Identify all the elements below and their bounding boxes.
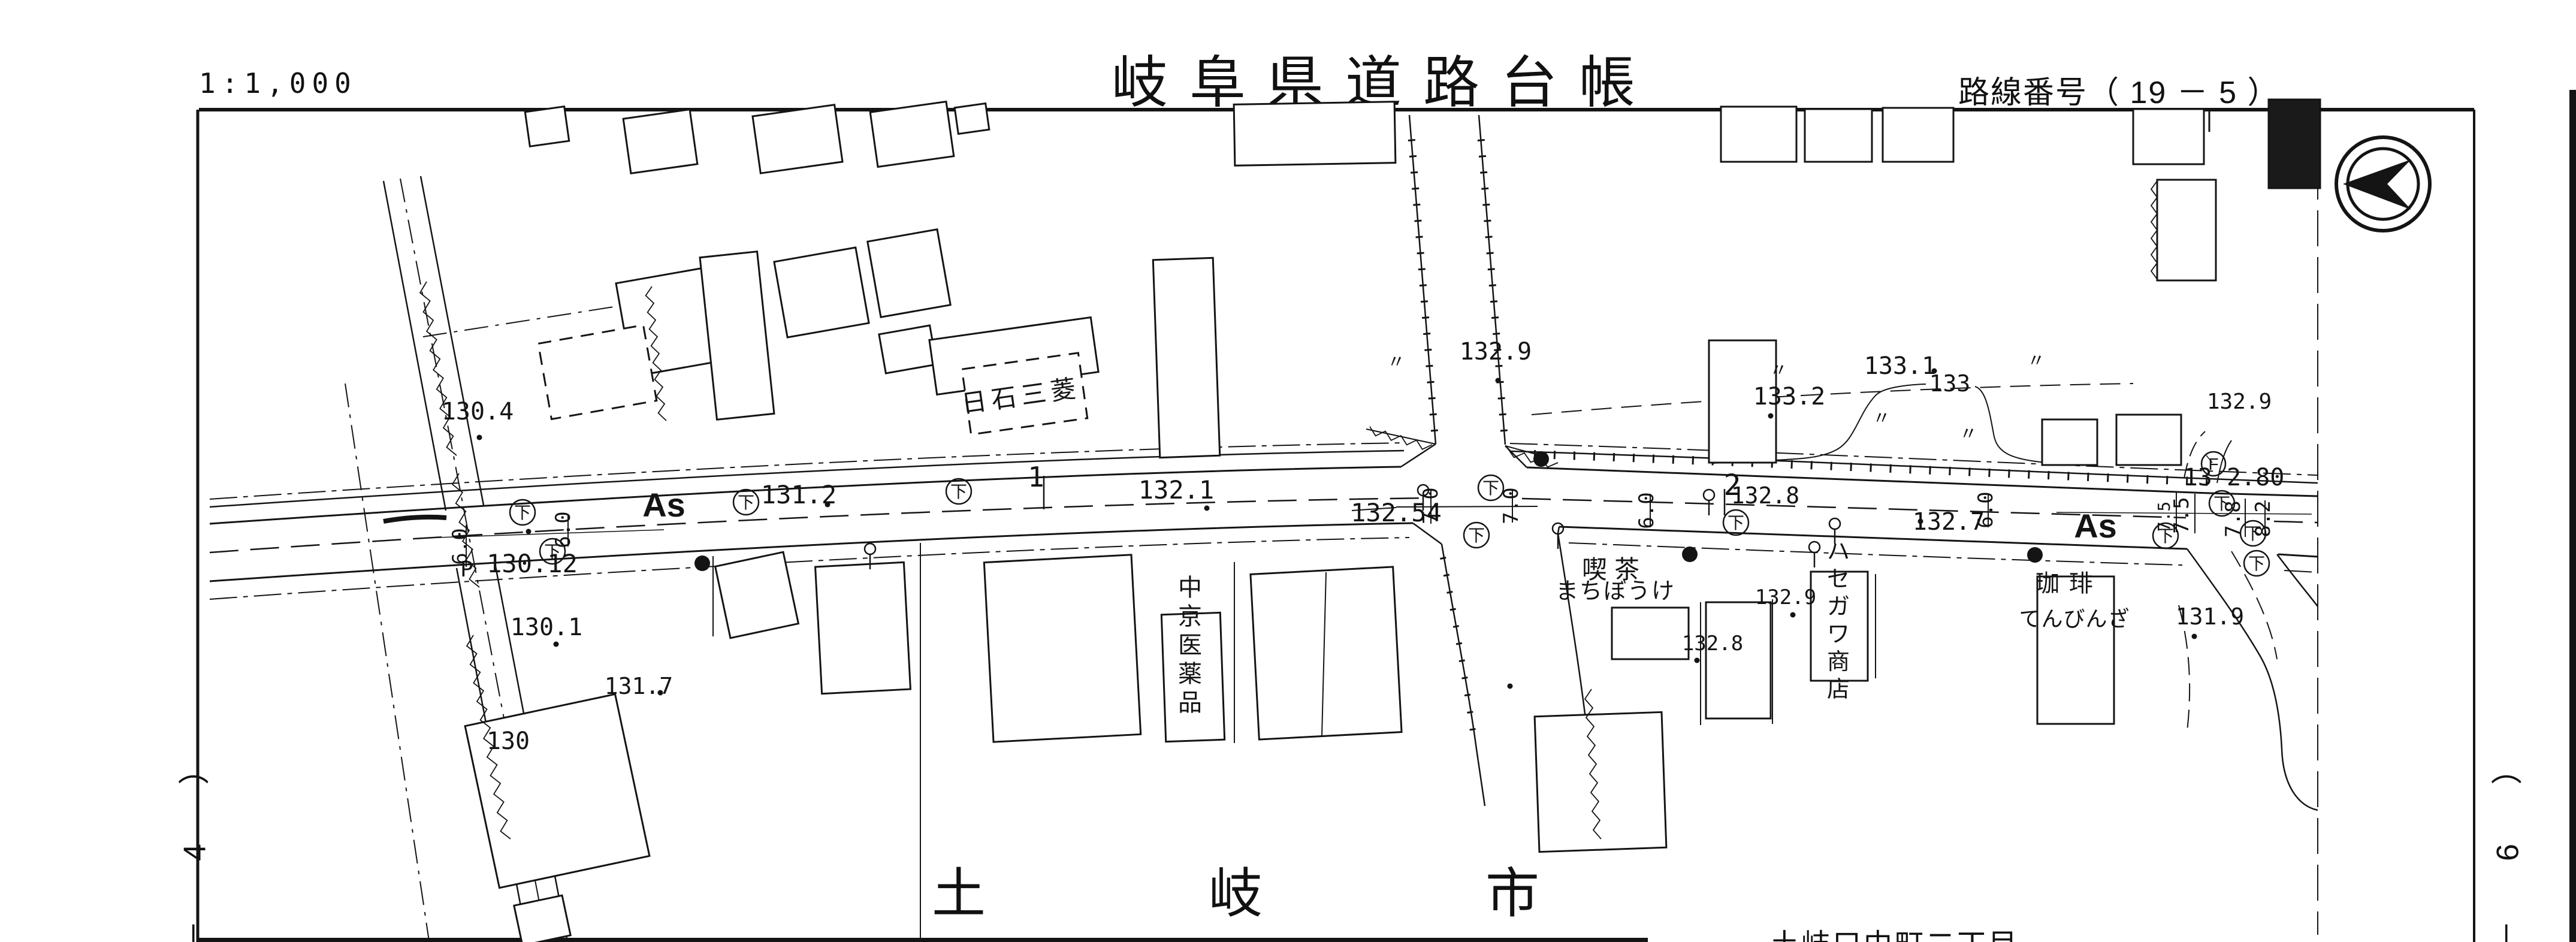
map-label: 130 bbox=[487, 727, 530, 755]
building-outline bbox=[2133, 109, 2204, 164]
sewer-manhole-icon: 下 bbox=[946, 479, 971, 504]
map-label: 〃 bbox=[1873, 409, 1891, 428]
building-outline bbox=[870, 102, 954, 167]
map-label: 6.0 bbox=[1974, 491, 1998, 528]
spot-elevation-dot bbox=[1695, 658, 1700, 663]
north-arrow-icon bbox=[2336, 137, 2430, 231]
building-outline bbox=[955, 104, 989, 134]
spot-elevation-dot bbox=[477, 435, 482, 440]
map-label: 130.4 bbox=[442, 398, 514, 425]
building-outline bbox=[868, 230, 950, 318]
building-outline bbox=[465, 694, 650, 887]
map-label: 132.8 bbox=[1731, 482, 1799, 509]
sewer-manhole-icon: 下 bbox=[2244, 551, 2269, 576]
building-outline bbox=[2042, 419, 2097, 465]
survey-point-icon bbox=[694, 555, 710, 571]
map-label: 〃 bbox=[1387, 352, 1405, 372]
map-label: 〃 bbox=[2027, 351, 2045, 371]
map-label: てんびんざ bbox=[2019, 606, 2130, 631]
survey-point-icon bbox=[2027, 547, 2043, 563]
spot-elevation-dot bbox=[2192, 634, 2197, 639]
svg-text:下: 下 bbox=[1728, 514, 1744, 532]
spot-elevation-dot bbox=[1204, 506, 1210, 511]
map-label: 8.2 bbox=[2251, 500, 2275, 537]
svg-text:下: 下 bbox=[2248, 554, 2265, 573]
building-outline bbox=[1883, 108, 1953, 162]
map-label: 132.9 bbox=[1755, 585, 1816, 609]
map-label: 〃 bbox=[1769, 361, 1787, 381]
map-label: 132.9 bbox=[2207, 390, 2272, 414]
map-label: 132.9 bbox=[1460, 338, 1532, 366]
building-outline bbox=[2157, 180, 2216, 280]
spot-elevation-dot bbox=[526, 529, 531, 535]
map-label: 6.0 bbox=[448, 528, 472, 564]
scan-edge-right bbox=[2569, 90, 2576, 942]
building-outline bbox=[1535, 712, 1666, 852]
map-label: 131.9 bbox=[2176, 603, 2244, 630]
map-label: As bbox=[642, 486, 685, 524]
svg-text:下: 下 bbox=[1482, 479, 1499, 497]
building-outline bbox=[700, 252, 774, 420]
map-label: 7.8 bbox=[2221, 500, 2245, 537]
map-label: 133.1 bbox=[1864, 352, 1936, 380]
map-label: まちぼうけ bbox=[1556, 579, 1675, 604]
map-label: 131.2 bbox=[761, 480, 836, 509]
map-label: 130.1 bbox=[511, 614, 582, 641]
map-label: 7.0 bbox=[1499, 487, 1523, 524]
building-outline bbox=[984, 555, 1140, 742]
survey-point-icon bbox=[1682, 547, 1698, 562]
map-label: 131.7 bbox=[605, 673, 673, 699]
building-outline bbox=[1234, 102, 1396, 166]
scan-edge-bottom bbox=[198, 938, 1648, 942]
cross-street-north bbox=[1409, 115, 1505, 445]
map-label: 13 2.80 bbox=[2184, 464, 2285, 491]
spot-elevation-dot bbox=[1768, 413, 1774, 419]
spot-elevation-dot bbox=[1790, 612, 1796, 618]
building-outline bbox=[879, 325, 937, 373]
sewer-manhole-icon: 下 bbox=[1723, 510, 1748, 535]
building-outline bbox=[1153, 258, 1219, 457]
map-label: 中京医薬品 bbox=[1178, 575, 1202, 716]
spot-elevation-dot bbox=[1508, 684, 1513, 689]
map-label: 133.2 bbox=[1753, 383, 1825, 410]
survey-point-icon bbox=[1533, 451, 1549, 467]
map-label: 〃 bbox=[1959, 424, 1977, 444]
map-label: 珈琲 bbox=[2036, 570, 2103, 597]
slope-hatch-line bbox=[1370, 427, 1432, 449]
map-label: 6.0 bbox=[551, 511, 575, 548]
parcel-boundaries bbox=[423, 117, 2318, 938]
sewer-manhole-icon: 下 bbox=[733, 490, 759, 515]
building-outline bbox=[753, 105, 842, 173]
spot-elevation-dot bbox=[1496, 378, 1501, 384]
building-outline bbox=[774, 247, 869, 337]
building-outline bbox=[1721, 107, 1796, 162]
map-label: 6.0 bbox=[1635, 492, 1659, 529]
building-outline bbox=[2116, 415, 2181, 465]
building-outline bbox=[1805, 109, 1872, 162]
svg-text:下: 下 bbox=[1468, 526, 1485, 545]
map-label: As bbox=[2074, 507, 2117, 545]
building-outline bbox=[1612, 608, 1689, 659]
spot-elevation-dot bbox=[554, 642, 559, 647]
map-label: 1 bbox=[1028, 461, 1044, 493]
building-outline bbox=[2269, 99, 2320, 188]
building-outline bbox=[623, 110, 697, 174]
building-outline bbox=[525, 107, 569, 147]
svg-text:下: 下 bbox=[514, 503, 531, 522]
cadastral-map: 下下下下下下下下下下下F 130.4130.12130.1130131.7131… bbox=[0, 0, 2576, 942]
map-label: 7.0 bbox=[1419, 487, 1443, 524]
sewer-manhole-icon: 下 bbox=[1464, 523, 1489, 548]
map-label: 7.5 bbox=[2170, 497, 2194, 533]
map-label: 132.1 bbox=[1138, 475, 1214, 505]
svg-text:下: 下 bbox=[950, 482, 967, 501]
sewer-manhole-icon: 下 bbox=[510, 500, 535, 525]
svg-text:下: 下 bbox=[738, 493, 754, 512]
map-label: 133 bbox=[1929, 370, 1971, 397]
building-outline bbox=[715, 552, 799, 638]
building-outline bbox=[2037, 576, 2114, 724]
building-outline bbox=[538, 325, 657, 419]
building-outline bbox=[514, 895, 570, 942]
utility-pole-icon bbox=[1704, 490, 1714, 515]
road-ledger-sheet: 1:1,000 岐阜県道路台帳 路線番号（ 19 － 5 ） － 4 ） － 6… bbox=[0, 0, 2576, 942]
map-label: 132.8 bbox=[1682, 632, 1743, 656]
slope-hatch-line bbox=[420, 282, 457, 455]
building-outline bbox=[1706, 602, 1771, 718]
utility-pole-icon bbox=[1809, 542, 1820, 567]
map-label: 130.12 bbox=[487, 549, 578, 578]
building-outline bbox=[816, 562, 911, 693]
